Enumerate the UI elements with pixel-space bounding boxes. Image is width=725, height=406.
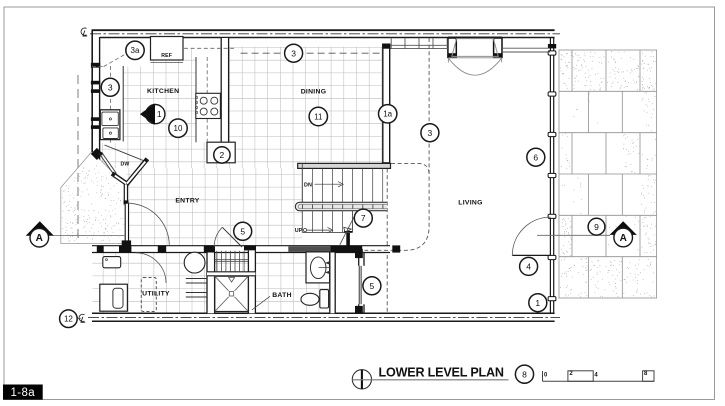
svg-text:7: 7 [361,213,366,223]
svg-text:6: 6 [533,152,538,162]
svg-text:3a: 3a [131,46,140,55]
svg-text:0: 0 [544,372,548,378]
svg-text:5: 5 [370,281,375,291]
svg-text:UTILITY: UTILITY [142,291,170,298]
svg-text:DW: DW [120,162,129,168]
svg-text:UP: UP [295,228,303,234]
svg-text:4: 4 [526,261,531,271]
svg-text:A: A [620,233,627,244]
svg-text:11: 11 [314,112,323,121]
svg-text:3: 3 [291,48,296,58]
svg-text:3: 3 [108,82,113,92]
svg-text:DN: DN [304,182,312,188]
svg-text:DINING: DINING [301,88,327,95]
svg-text:3: 3 [428,128,433,138]
svg-text:REF: REF [161,53,172,59]
svg-text:10: 10 [174,124,183,133]
svg-text:LIVING: LIVING [458,199,482,206]
svg-text:1: 1 [535,298,540,308]
svg-text:ENTRY: ENTRY [175,197,199,204]
svg-text:KITCHEN: KITCHEN [147,88,179,95]
svg-text:8: 8 [522,369,527,379]
svg-text:2: 2 [569,371,573,377]
svg-text:4: 4 [594,372,598,378]
svg-text:BATH: BATH [272,292,292,299]
svg-text:1a: 1a [383,110,392,119]
svg-text:LOWER LEVEL PLAN: LOWER LEVEL PLAN [379,366,504,380]
svg-text:2: 2 [220,150,225,160]
svg-text:12: 12 [64,315,73,324]
svg-text:1-8a: 1-8a [10,387,35,399]
svg-text:1: 1 [157,109,162,119]
svg-text:5: 5 [240,226,245,236]
svg-text:8: 8 [644,371,648,377]
svg-text:A: A [36,233,43,244]
svg-text:9: 9 [594,222,599,232]
